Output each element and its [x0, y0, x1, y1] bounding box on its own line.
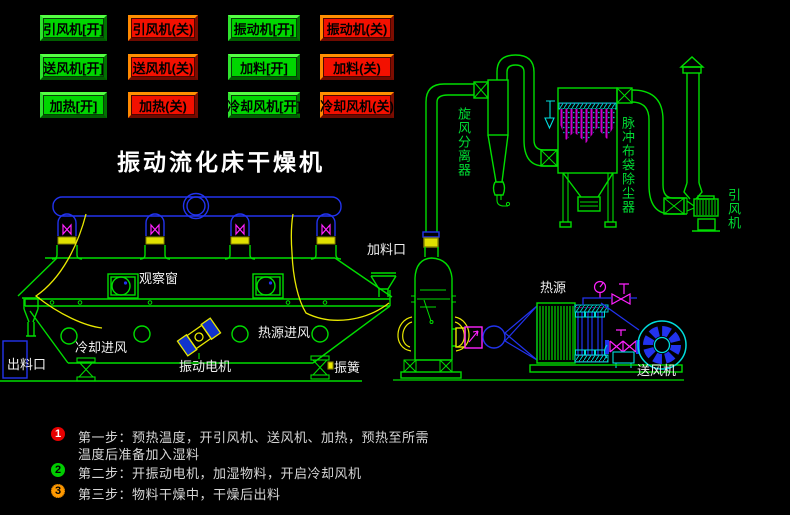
cooling-air-inlet-label: 冷却进风 — [75, 341, 127, 355]
vibrator-off-button[interactable]: 振动机(关) — [320, 15, 394, 41]
induced-fan-on-button[interactable]: 引风机[开] — [40, 15, 107, 41]
vibration-spring-label: 振簧 — [334, 361, 360, 375]
heater-off-button[interactable]: 加热(关) — [128, 92, 198, 118]
step-1-badge: 1 — [51, 427, 65, 441]
step-1-text-line-2: 温度后准备加入湿料 — [78, 444, 200, 463]
step-2-text: 第二步：开振动电机，加湿物料，开启冷却风机 — [78, 463, 362, 482]
induced-fan-off-button[interactable]: 引风机(关) — [128, 15, 198, 41]
bag-filter-drawing — [545, 88, 687, 227]
vibrator-on-button[interactable]: 振动机[开] — [228, 15, 300, 41]
induced-draft-fan-label: 引风机 — [726, 188, 740, 230]
bag-dust-collector-label: 脉冲布袋除尘器 — [620, 116, 634, 214]
stack-and-induced-fan-drawing — [681, 57, 720, 231]
exhaust-manifold-drawing — [52, 194, 341, 260]
step-3-text: 第三步：物料干燥中，干燥后出料 — [78, 484, 281, 503]
cyclone-separator-label: 旋风分离器 — [456, 107, 470, 177]
supply-fan-label: 送风机 — [637, 364, 676, 378]
step-2-badge: 2 — [51, 463, 65, 477]
supply-fan-on-button[interactable]: 送风机[开] — [40, 54, 107, 80]
observation-window-label: 观察窗 — [139, 272, 178, 286]
flex-connector-curves — [36, 214, 389, 328]
step-3-badge: 3 — [51, 484, 65, 498]
hmi-screen: 引风机[开] 引风机(关) 振动机[开] 振动机(关) 送风机[开] 送风机(关… — [0, 0, 790, 515]
discharge-outlet-label: 出料口 — [7, 358, 46, 372]
vibration-motor-drawing — [177, 318, 220, 356]
supply-fan-off-button[interactable]: 送风机(关) — [128, 54, 198, 80]
feeder-on-button[interactable]: 加料[开] — [228, 54, 300, 80]
supply-fan-drawing — [638, 321, 686, 369]
observation-window-drawing — [108, 274, 283, 298]
cooling-fan-on-button[interactable]: 冷却风机[开] — [228, 92, 300, 118]
cyclone-drawing — [488, 55, 558, 206]
heater-on-button[interactable]: 加热[开] — [40, 92, 107, 118]
feed-inlet-label: 加料口 — [367, 243, 406, 257]
vibration-motor-label: 振动电机 — [179, 360, 231, 374]
heat-source-air-inlet-label: 热源进风 — [258, 326, 310, 340]
heat-source-label: 热源 — [540, 281, 566, 295]
page-title: 振动流化床干燥机 — [117, 143, 325, 177]
feeder-off-button[interactable]: 加料(关) — [320, 54, 394, 80]
cooling-fan-off-button[interactable]: 冷却风机(关) — [320, 92, 394, 118]
